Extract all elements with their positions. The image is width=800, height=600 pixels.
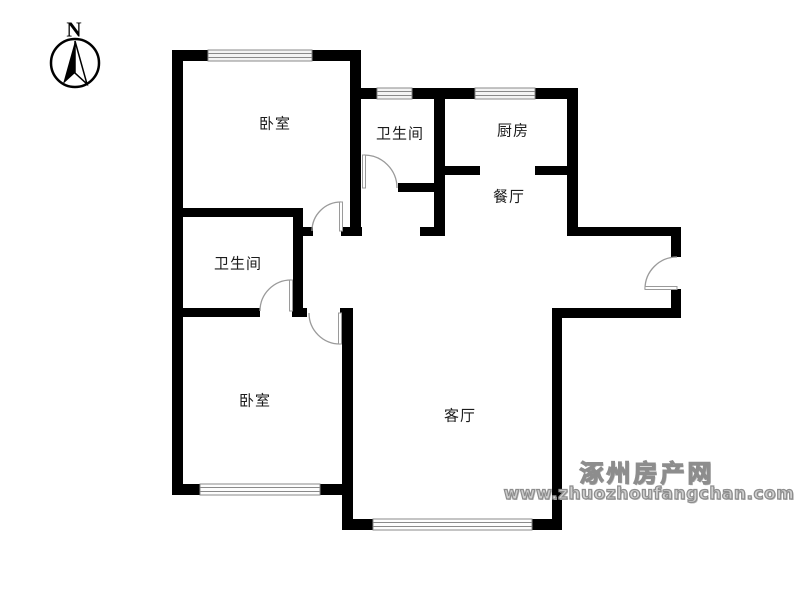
door-entry [645,257,677,290]
floor-plan-drawing [0,0,800,600]
windows [200,50,535,530]
room-label-bathroom-top: 卫生间 [376,123,424,144]
door-bathroom-top [363,155,398,188]
room-label-living: 客厅 [444,405,476,426]
compass-needle-dark [63,41,75,84]
window-kitchen [475,88,535,99]
door-bedroom-bottom [309,313,342,344]
compass-rose [51,39,99,87]
room-label-bathroom-mid: 卫生间 [214,253,262,274]
window-living [373,519,532,530]
door-bathroom-mid [260,280,293,311]
compass-north-label: N [66,18,81,43]
floor-plan: 卧室 卫生间 厨房 餐厅 卫生间 卧室 客厅 N 涿州房产网 www.zhuoz… [0,0,800,600]
window-bedroom-bottom [200,484,320,495]
window-bathroom-top [377,88,412,99]
room-label-kitchen: 厨房 [497,120,529,141]
room-label-bedroom-top: 卧室 [259,113,291,134]
compass-needle-light [75,41,87,84]
room-label-bedroom-bottom: 卧室 [239,390,271,411]
room-label-dining: 餐厅 [493,186,525,207]
door-bedroom-top [312,202,343,231]
window-bedroom-top [208,50,312,61]
watermark-site-url: www.zhuozhoufangchan.com [504,484,795,504]
